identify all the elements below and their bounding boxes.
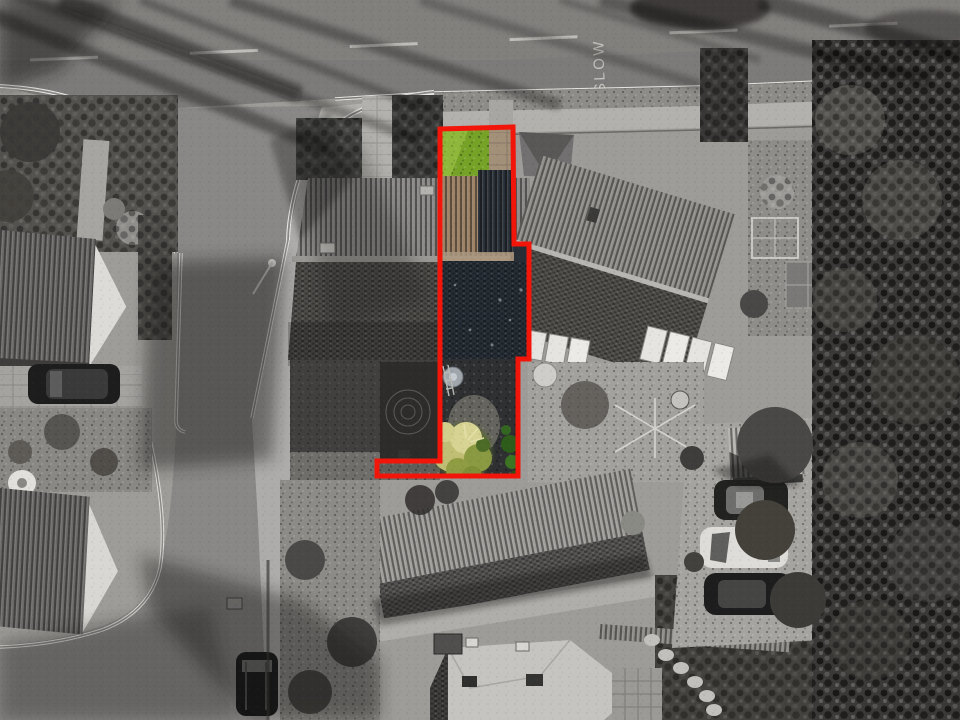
aerial-photo: SLOW (0, 0, 960, 720)
aerial-photo-canvas: SLOW (0, 0, 960, 720)
photo-grain (0, 0, 960, 720)
